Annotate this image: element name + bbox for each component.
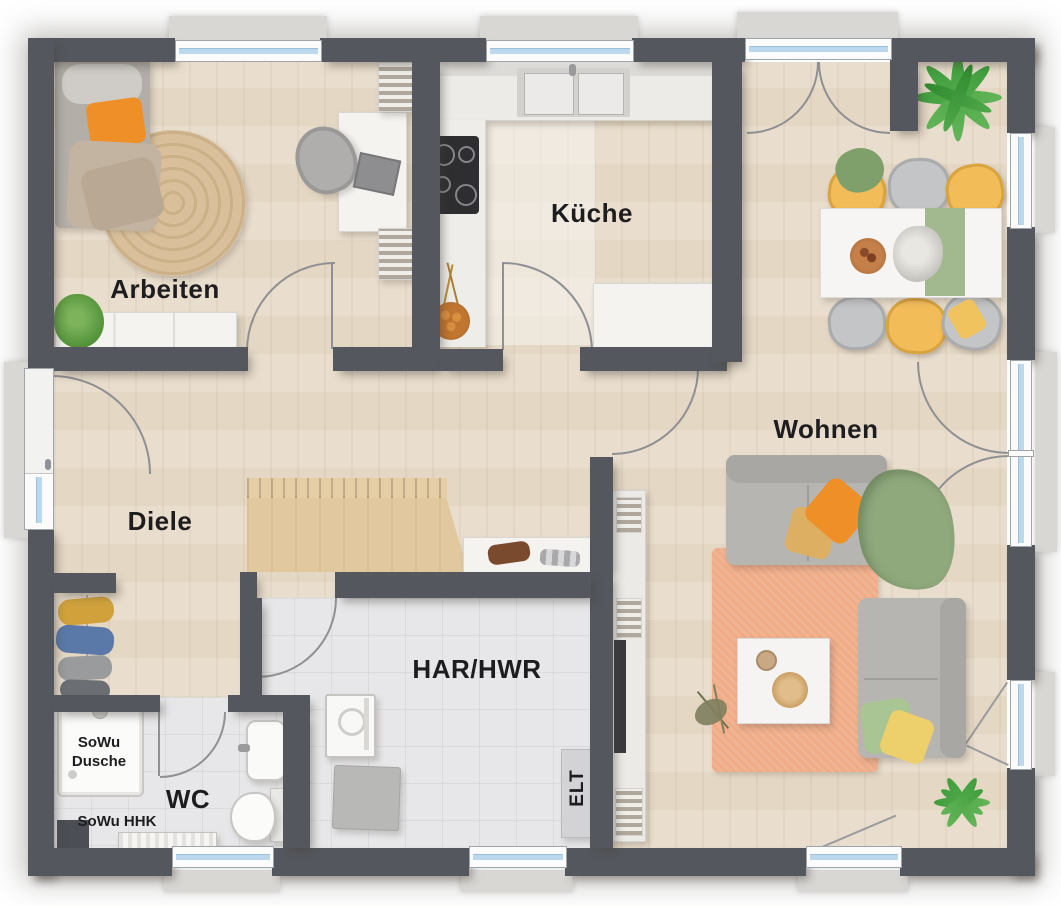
stairs-treads [247,478,447,498]
annotation-shower: SoWu Dusche [57,733,141,771]
dryer-unit [332,765,401,831]
sink-faucet [569,64,576,76]
wall-arbeiten-bottom-right [333,347,440,371]
room-label-elt: ELT [567,766,589,810]
window-sill [164,870,280,892]
wall-right-4 [1007,768,1035,876]
wall-left-1 [28,38,54,370]
bookshelf-top [378,62,413,112]
sofa-right-cushion-split [864,678,938,680]
sideboard-books-top [616,497,642,533]
window-top-arbeiten [175,40,322,62]
window-glass [1018,137,1024,225]
wall-wc-har [283,712,310,848]
room-label-diele: Diele [100,506,220,537]
kueche-door-leaf [502,262,504,350]
window-sill [737,12,898,40]
table-vase [756,650,777,671]
wall-har-top-right [335,572,591,598]
coat-yellow [57,596,115,627]
wall-har-top-left [240,572,257,598]
sink-basin-left [524,73,574,115]
table-tray [772,672,808,708]
terrace-door-wohnen [745,38,892,60]
window-glass [749,46,888,52]
window-sill [798,870,908,892]
wc-sink [246,720,286,781]
wall-wc-top-right [228,695,310,712]
wall-kueche-bottom-right [580,347,727,371]
tv-screen [614,640,626,753]
arbeiten-door-leaf [331,262,333,349]
copper-bowl [850,238,886,274]
kitchen-counter-right [593,283,714,349]
annotation-shower-line1: SoWu [57,733,141,752]
window-bottom-har [469,846,567,868]
cooktop-burner [455,184,477,206]
front-door [24,368,54,530]
window-sill [169,16,327,40]
window-glass [179,48,318,54]
annotation-heater: SoWu HHK [62,812,172,831]
floor-plan: Arbeiten Küche Wohnen Diele HAR/HWR WC E… [0,0,1061,906]
wall-arbeiten-kueche [412,62,440,347]
wall-bottom-1 [28,848,172,876]
washing-machine-door [338,708,366,736]
french-window-divider [1008,450,1034,457]
wall-diele-wohnen [590,457,613,572]
cooktop-burner [458,146,475,163]
window-glass [473,854,563,860]
room-label-wohnen: Wohnen [756,414,896,445]
window-glass [810,854,898,860]
floor-plant-wohnen [934,774,990,830]
sofa-right-backrest [940,598,966,758]
bookshelf-bottom [378,228,413,280]
toilet-bowl [230,792,276,842]
wall-kueche-wohnen [712,62,742,362]
coat-blue [55,624,115,656]
sideboard-books-bottom [615,788,643,836]
window-right-3 [1010,680,1032,770]
wall-top-2 [320,38,486,62]
wall-wc-top-left [54,695,160,712]
wall-bottom-3 [565,848,806,876]
washing-machine-panel [364,698,369,750]
room-label-kueche: Küche [530,198,654,229]
wall-arbeiten-bottom-left [54,347,248,371]
room-label-har-hwr: HAR/HWR [395,654,559,685]
window-glass [176,854,270,860]
room-label-wc: WC [158,784,218,815]
wall-bottom-2 [272,848,469,876]
decor-items [539,549,580,568]
window-sill [1035,352,1057,552]
room-label-arbeiten: Arbeiten [95,274,235,305]
window-sill [1035,127,1055,233]
wall-right-2 [1007,227,1035,360]
wall-kueche-bottom-left [440,349,503,371]
front-door-glass [36,477,42,523]
annotation-shower-line2: Dusche [57,752,141,771]
sideboard-books-mid [616,598,642,638]
window-sill [1035,672,1055,776]
wc-sink-faucet [238,744,250,752]
wall-diele-har-stub [240,598,262,697]
wall-coat-nook-stub [54,573,116,593]
window-top-kueche [486,40,634,62]
window-bottom-wc [172,846,274,868]
sofa-top-backrest [726,455,887,483]
window-sill [480,16,638,40]
wall-right-1 [1007,38,1035,133]
wall-pillar-wohnen [890,62,918,131]
window-glass [1018,684,1024,766]
wall-top-3 [632,38,745,62]
window-glass [490,48,630,54]
wall-left-2 [28,527,54,876]
shower-drain [68,770,77,779]
coat-gray [57,655,112,682]
wall-right-3 [1007,545,1035,680]
window-right-1 [1010,133,1032,229]
window-sill [461,870,573,892]
wc-door-leaf [158,712,160,776]
stairs-body [247,496,468,572]
palm-plant [912,52,1004,140]
front-door-handle [45,459,51,470]
sink-basin-right [578,73,624,115]
wall-har-wohnen [590,572,613,848]
window-bottom-wohnen [806,846,902,868]
